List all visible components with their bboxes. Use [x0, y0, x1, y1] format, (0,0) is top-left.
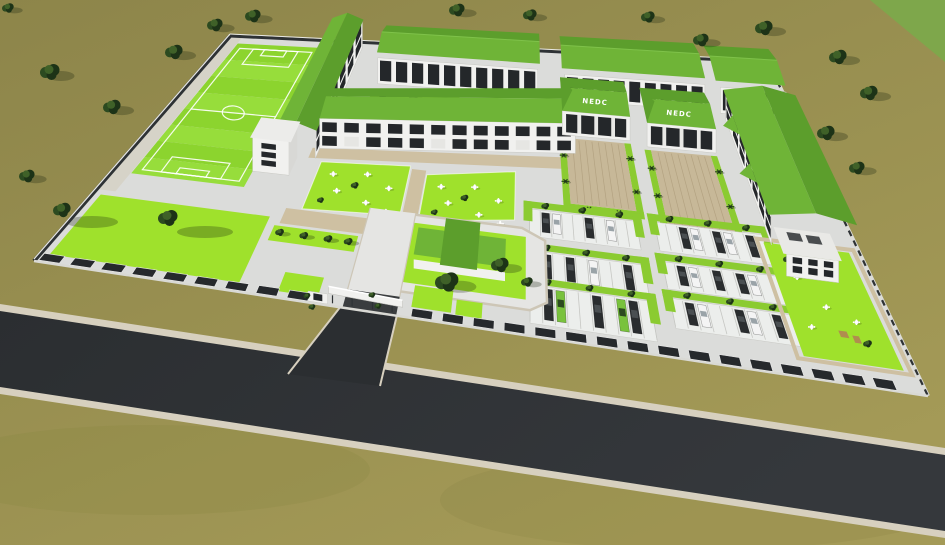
nedc-hall-2: NEDC — [639, 88, 716, 153]
scene-canvas: NEDCNEDC — [0, 0, 945, 545]
parked-car — [542, 213, 551, 234]
central-classroom-block — [320, 88, 593, 153]
nedc-hall-1: NEDC — [560, 77, 630, 141]
parked-car — [566, 257, 576, 282]
courtyard-garden-1 — [302, 162, 411, 216]
parked-car — [556, 290, 566, 323]
stair-tower — [250, 117, 300, 175]
site-render: NEDCNEDC — [0, 0, 945, 545]
parked-car — [553, 214, 562, 235]
